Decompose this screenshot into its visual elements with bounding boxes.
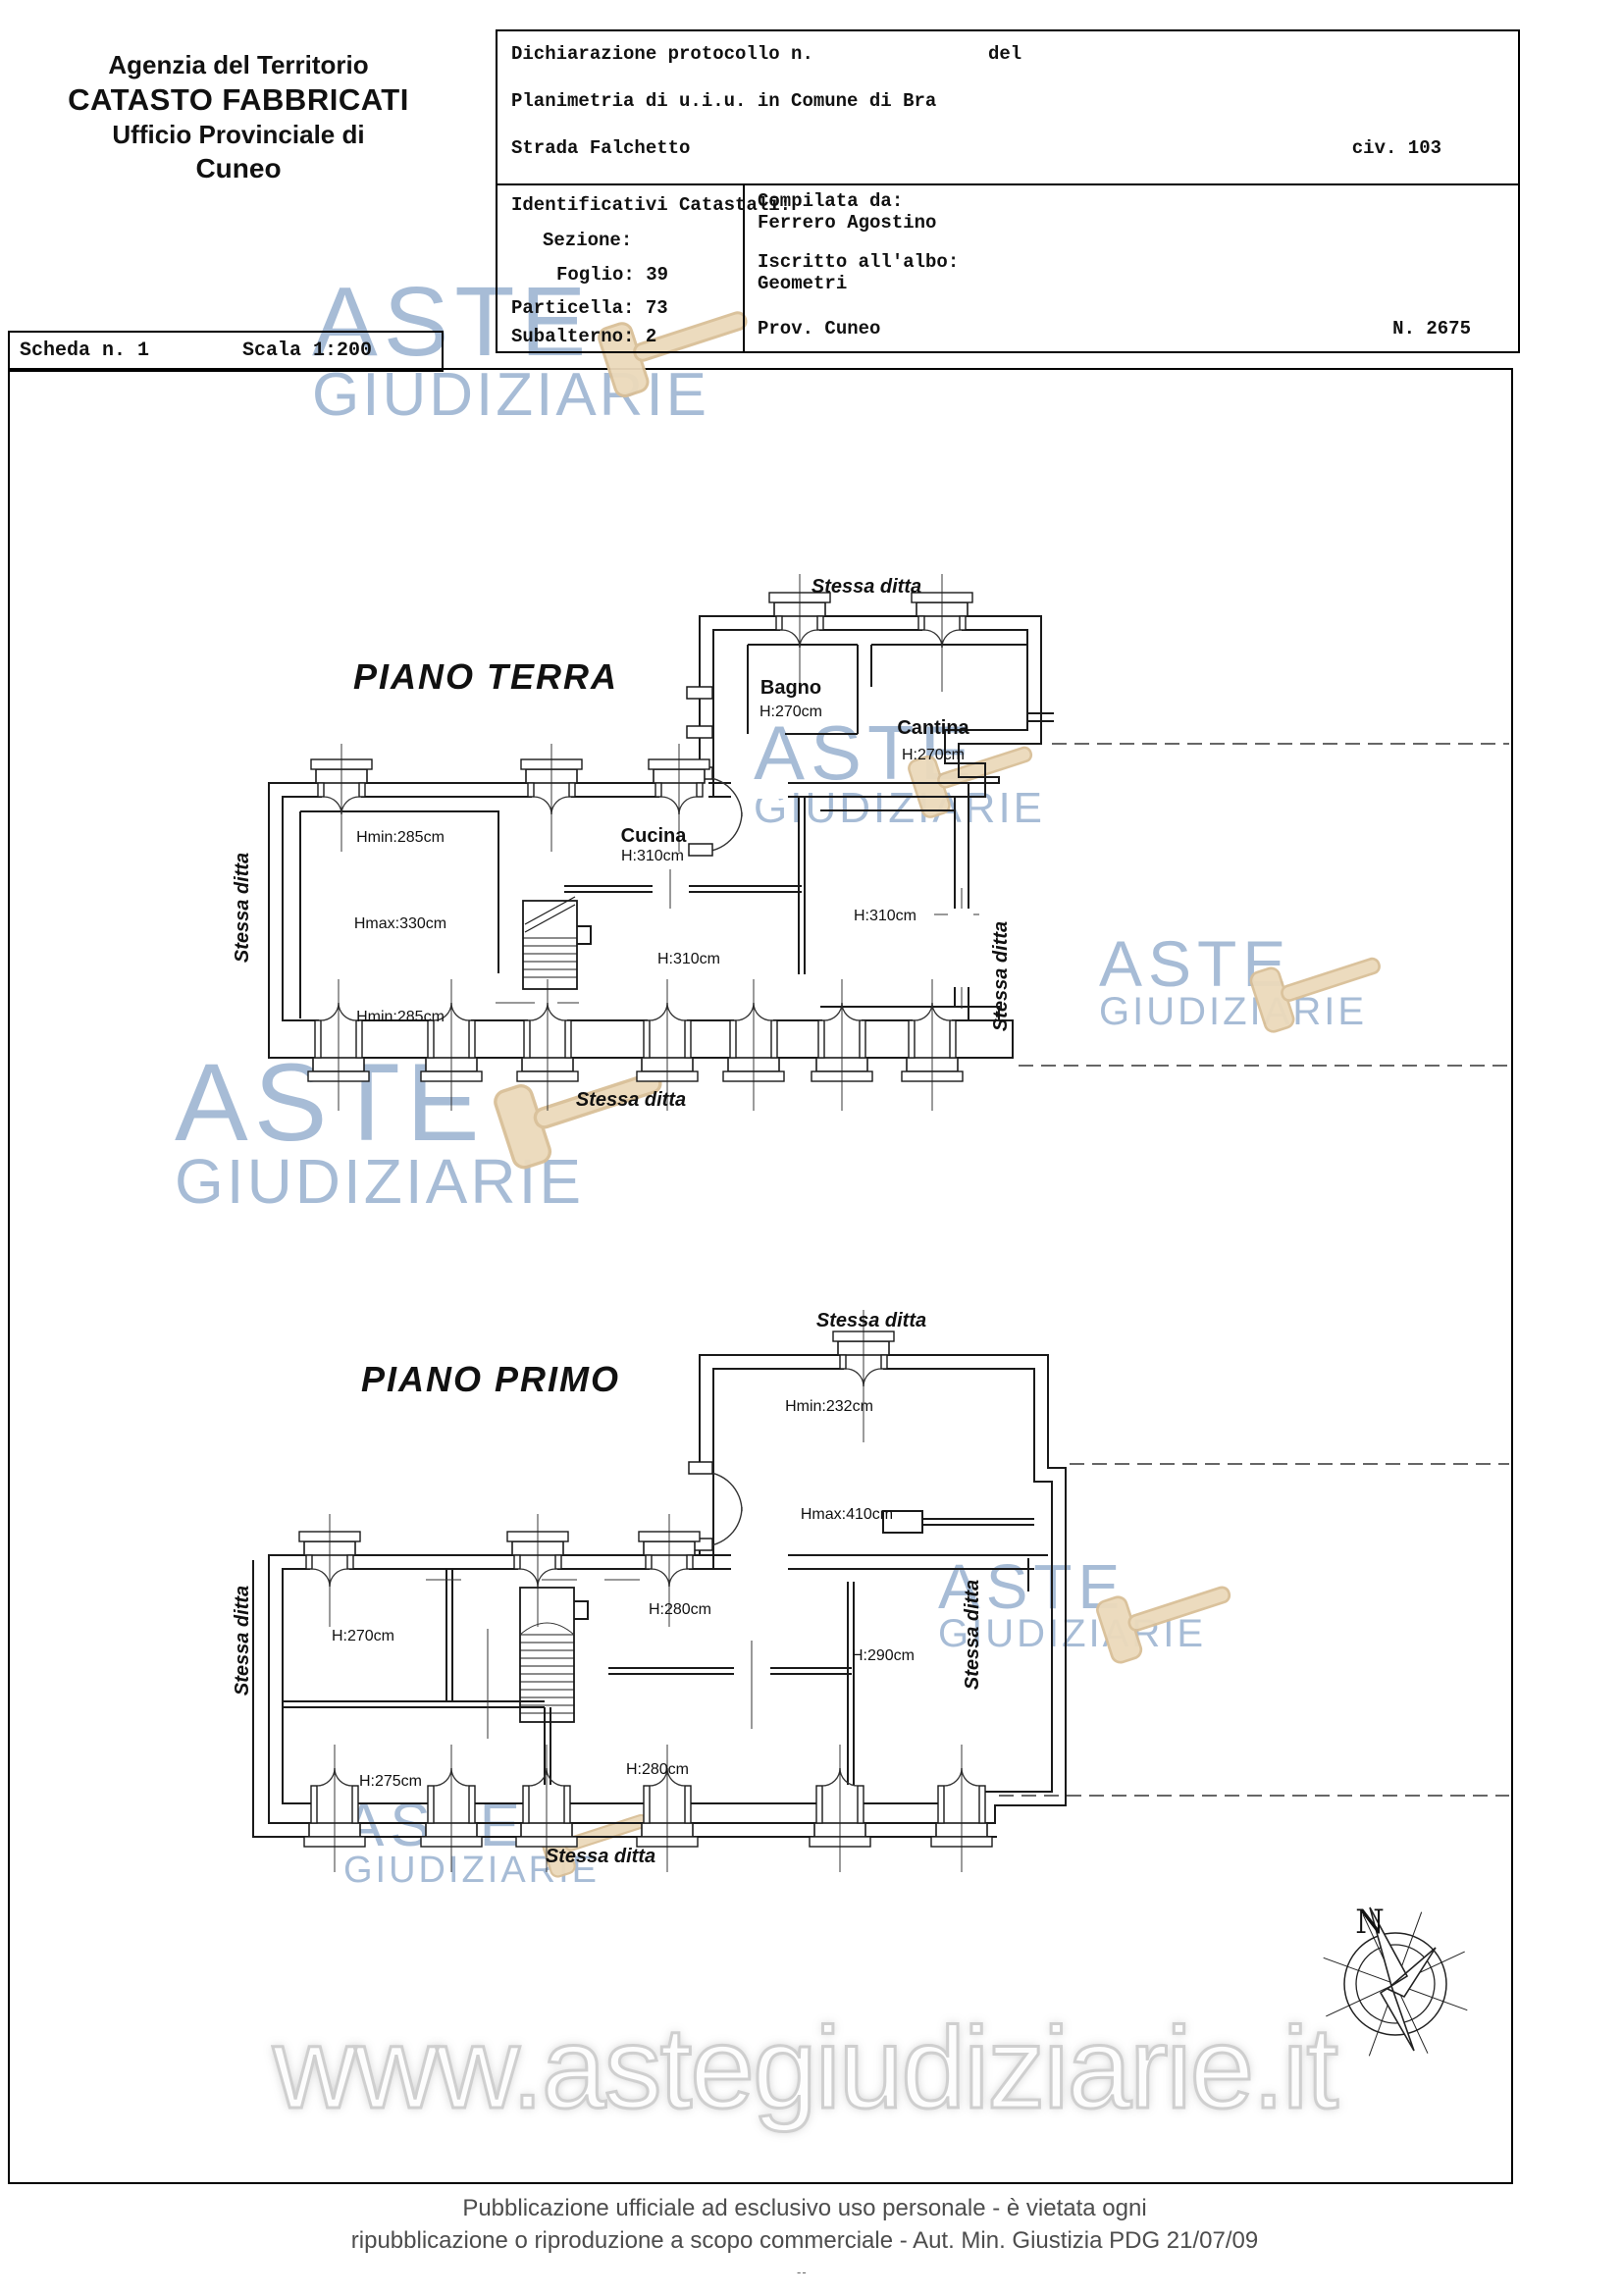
footer-line2: ripubblicazione o riproduzione a scopo c…: [88, 2224, 1521, 2257]
window-jamb: [569, 783, 575, 797]
window-jamb: [524, 1020, 530, 1058]
room-h290: H:290cm: [852, 1647, 915, 1664]
stessa-ditta-label: Stessa ditta: [232, 1586, 253, 1696]
window-jamb: [689, 844, 712, 856]
window-jamb: [523, 1786, 529, 1823]
window-jamb: [909, 1020, 915, 1058]
room-hmax: Hmax:330cm: [354, 915, 446, 932]
room-h275: H:275cm: [359, 1773, 422, 1790]
door-opening: [731, 779, 788, 799]
window-leaf-arc: [650, 1003, 667, 1020]
stessa-ditta-label: Stessa ditta: [990, 921, 1012, 1031]
window-jamb: [730, 1020, 736, 1058]
window-leaf-arc: [754, 1003, 771, 1020]
window-leaf-arc: [451, 1003, 469, 1020]
scheda-number: Scheda n. 1: [20, 339, 149, 362]
stessa-ditta-label: Stessa ditta: [816, 1310, 926, 1331]
agency-line1: Agenzia del Territorio: [18, 49, 459, 81]
agency-line2: CATASTO FABBRICATI: [18, 81, 459, 120]
window-jamb: [428, 1020, 434, 1058]
window-jamb: [528, 783, 534, 797]
window-leaf-arc: [330, 1569, 347, 1587]
window-leaf-arc: [538, 1569, 555, 1587]
room-h280-top: H:280cm: [649, 1601, 711, 1618]
window-jamb: [469, 1786, 475, 1823]
room-cantina-label: Cantina: [897, 717, 969, 739]
window-leaf-arc: [736, 1003, 754, 1020]
window-jamb: [565, 1020, 571, 1058]
agency-line4: Cuneo: [18, 151, 459, 185]
window-leaf-arc: [520, 1569, 538, 1587]
window-leaf-arc: [669, 1569, 687, 1587]
room-bagno-label: Bagno: [760, 677, 821, 699]
window-jamb: [960, 616, 966, 630]
room-bagno-height: H:270cm: [759, 704, 822, 720]
street-label: Strada Falchetto: [511, 137, 690, 159]
protocol-label: Dichiarazione protocollo n.: [511, 43, 813, 65]
stessa-ditta-label: Stessa ditta: [576, 1089, 686, 1111]
piano-terra-title: PIANO TERRA: [353, 656, 618, 697]
declaration-box: Dichiarazione protocollo n. del Planimet…: [496, 29, 1520, 353]
foglio-field: Foglio: 39: [556, 264, 668, 286]
interior-wall: [253, 1560, 997, 1837]
window-leaf-arc: [652, 1569, 669, 1587]
albo-label: Iscritto all'albo:: [758, 251, 959, 273]
civic-number: civ. 103: [1352, 137, 1441, 159]
window-jamb: [428, 1786, 434, 1823]
window-leaf-arc: [944, 1768, 962, 1786]
window-leaf-arc: [547, 1768, 564, 1786]
window-jamb: [685, 1786, 691, 1823]
stair-landing: [574, 1601, 588, 1619]
window-jamb: [979, 1786, 985, 1823]
window-leaf-arc: [321, 1003, 339, 1020]
window-leaf-arc: [335, 1768, 352, 1786]
room-h270: H:270cm: [332, 1628, 394, 1644]
sezione-field: Sezione:: [543, 230, 632, 251]
window-jamb: [950, 1020, 956, 1058]
prov-field: Prov. Cuneo: [758, 318, 880, 339]
albo-number: N. 2675: [1392, 318, 1471, 339]
agency-line3: Ufficio Provinciale di: [18, 119, 459, 151]
window-jamb: [818, 1020, 824, 1058]
box-divider-horizontal: [497, 183, 1518, 185]
door-opening: [948, 909, 973, 987]
window-leaf-arc: [822, 1768, 840, 1786]
protocol-del-label: del: [988, 43, 1021, 65]
albo-value: Geometri: [758, 273, 847, 294]
window-leaf-arc: [534, 797, 551, 814]
window-jamb: [860, 1020, 865, 1058]
room-hmax-410: Hmax:410cm: [801, 1506, 893, 1523]
stessa-ditta-label: Stessa ditta: [546, 1846, 655, 1867]
stair-fan: [520, 1623, 574, 1635]
window-leaf-arc: [551, 797, 569, 814]
window-leaf-arc: [824, 1003, 842, 1020]
scale-label: Scala 1:200: [242, 339, 372, 362]
room-hmin-top: Hmin:285cm: [356, 829, 445, 846]
window-leaf-arc: [548, 1003, 565, 1020]
window-leaf-arc: [915, 1003, 932, 1020]
stair-break-line: [525, 905, 575, 932]
window-leaf-arc: [317, 1768, 335, 1786]
sheet-box: Scheda n. 1 Scala 1:200: [8, 331, 444, 372]
planimetria-label: Planimetria di u.i.u. in Comune di Bra: [511, 90, 936, 112]
window-jamb: [646, 1555, 652, 1569]
window-jamb: [816, 1786, 822, 1823]
piano-primo-title: PIANO PRIMO: [361, 1359, 620, 1399]
window-jamb: [687, 1555, 693, 1569]
window-jamb: [840, 1355, 846, 1369]
window-leaf-arc: [962, 1768, 979, 1786]
window-jamb: [918, 616, 924, 630]
window-jamb: [655, 783, 661, 797]
window-jamb: [938, 1786, 944, 1823]
agency-header: Agenzia del Territorio CATASTO FABBRICAT…: [18, 49, 459, 185]
window-jamb: [315, 1020, 321, 1058]
window-leaf-arc: [932, 1003, 950, 1020]
subalterno-field: Subalterno: 2: [511, 326, 656, 347]
window-jamb: [685, 1020, 691, 1058]
window-leaf-arc: [842, 1003, 860, 1020]
window-jamb: [644, 1786, 650, 1823]
window-jamb: [697, 783, 703, 797]
window-jamb: [817, 616, 823, 630]
room-sala-height: H:310cm: [657, 951, 720, 967]
window-jamb: [881, 1355, 887, 1369]
window-leaf-arc: [661, 797, 679, 814]
window-jamb: [306, 1555, 312, 1569]
window-jamb: [318, 783, 324, 797]
identificativi-title: Identificativi Catastali:: [511, 194, 791, 216]
window-leaf-arc: [312, 1569, 330, 1587]
compiler-name: Ferrero Agostino: [758, 212, 936, 234]
staircase: [523, 901, 577, 989]
room-cantina-height: H:270cm: [902, 747, 965, 763]
room-dx-height: H:310cm: [854, 908, 916, 924]
footer-line1: Pubblicazione ufficiale ad esclusivo uso…: [88, 2192, 1521, 2224]
room-hmin-bottom: Hmin:285cm: [356, 1009, 445, 1025]
outer-wall: [283, 1369, 1052, 1803]
stessa-ditta-label: Stessa ditta: [811, 576, 921, 598]
particella-field: Particella: 73: [511, 297, 668, 319]
compass-north-label: N: [1355, 1903, 1385, 1942]
window-jamb: [352, 1786, 358, 1823]
window-jamb: [689, 1462, 712, 1474]
room-hmin-232: Hmin:232cm: [785, 1398, 873, 1415]
room-cucina-height: H:310cm: [621, 848, 684, 864]
stessa-ditta-label: Stessa ditta: [962, 1580, 983, 1690]
stair-landing: [577, 926, 591, 944]
window-jamb: [347, 1555, 353, 1569]
window-jamb: [359, 783, 365, 797]
window-jamb: [687, 687, 712, 699]
window-leaf-arc: [667, 1003, 685, 1020]
window-jamb: [469, 1020, 475, 1058]
window-leaf-arc: [846, 1369, 864, 1386]
compilata-label: Compilata da:: [758, 190, 903, 212]
window-leaf-arc: [451, 1768, 469, 1786]
window-leaf-arc: [864, 1369, 881, 1386]
window-jamb: [564, 1786, 570, 1823]
window-jamb: [776, 616, 782, 630]
footer-mark: --: [797, 2265, 808, 2279]
window-leaf-arc: [530, 1003, 548, 1020]
stessa-ditta-label: Stessa ditta: [232, 853, 253, 963]
window-jamb: [514, 1555, 520, 1569]
window-leaf-arc: [339, 1003, 356, 1020]
room-cucina-label: Cucina: [621, 825, 688, 847]
window-jamb: [311, 1786, 317, 1823]
room-h280-bottom: H:280cm: [626, 1761, 689, 1778]
window-jamb: [356, 1020, 362, 1058]
window-jamb: [644, 1020, 650, 1058]
window-jamb: [555, 1555, 561, 1569]
window-jamb: [687, 726, 712, 738]
window-jamb: [858, 1786, 864, 1823]
footer-notice: Pubblicazione ufficiale ad esclusivo uso…: [88, 2192, 1521, 2257]
door-opening: [731, 1551, 788, 1571]
window-jamb: [771, 1020, 777, 1058]
window-leaf-arc: [434, 1768, 451, 1786]
